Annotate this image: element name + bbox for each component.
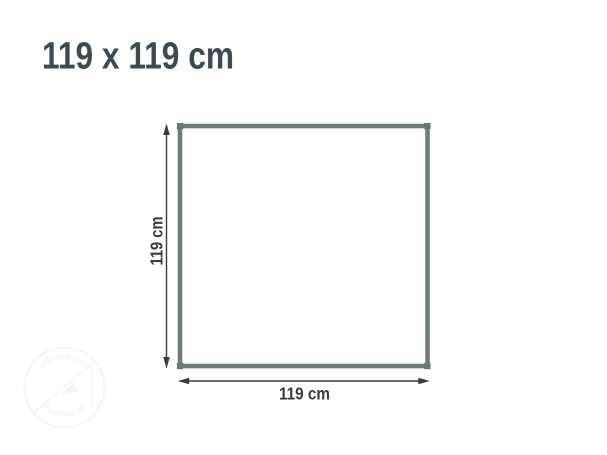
svg-text:ProfiNet.de: ProfiNet.de [41, 402, 87, 419]
svg-text:119 cm: 119 cm [147, 217, 167, 266]
svg-text:119 x 119 cm: 119 x 119 cm [42, 36, 234, 78]
svg-text:119 cm: 119 cm [279, 384, 330, 404]
